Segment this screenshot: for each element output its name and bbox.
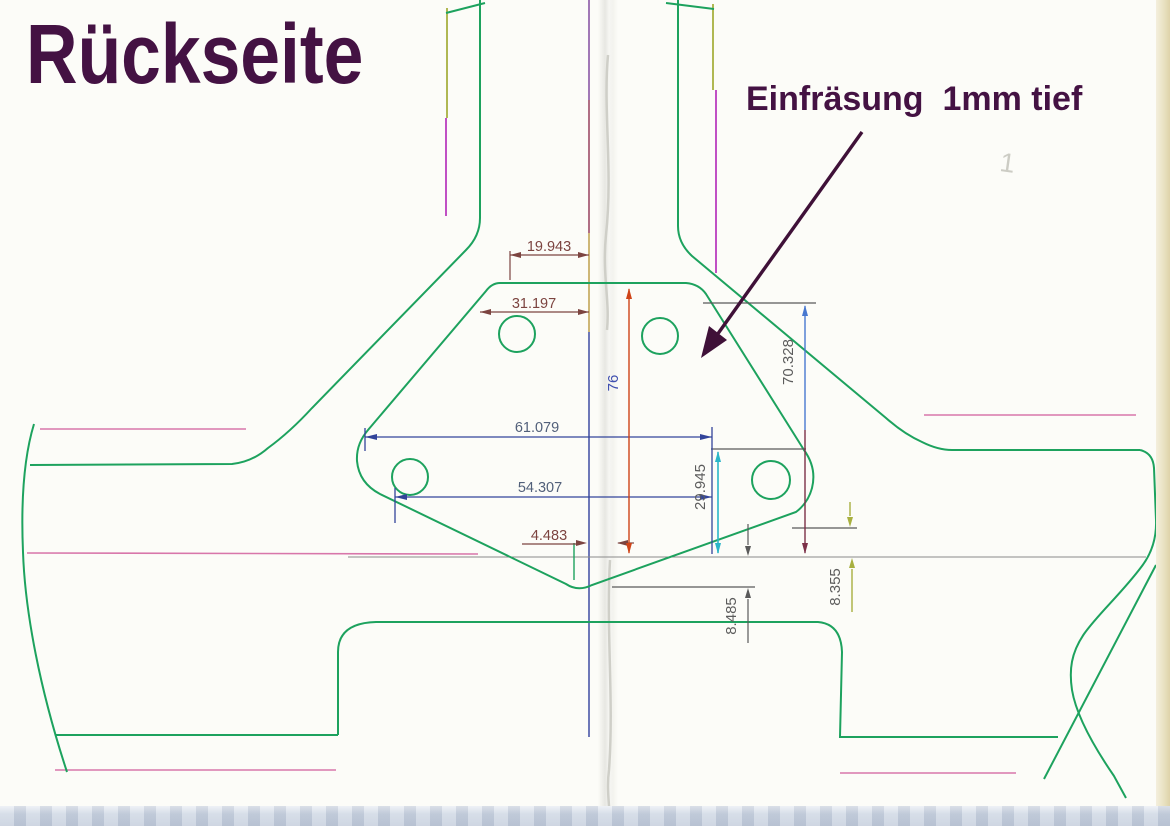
milling-note: Einfräsung 1mm tief [746,80,1082,119]
scan-edge-right [1156,0,1170,812]
extension-lines [612,303,857,587]
right-neck-and-shoulder [678,0,1140,450]
dimension-lines-red [480,251,634,544]
dimension-label-top-offset: 19.943 [527,239,571,255]
annotation-arrow [701,132,862,358]
dimension-step-right-arrows [847,517,855,568]
dimension-label-bottom-step-left: 8.485 [723,597,740,635]
seam-artifact-lines [605,55,611,824]
corner-diagonal [1044,565,1156,779]
hole-top-left [499,316,535,352]
scanned-drawing-page: 19.943 31.197 61.079 54.307 4.483 76 70.… [0,0,1170,826]
page-title: Rückseite [26,12,363,96]
right-wing-tip [1071,450,1156,798]
left-wing-tip [22,424,67,772]
olive-construction-lines [447,4,713,118]
dimension-label-total-height: 76 [605,375,622,392]
hole-bottom-right [752,461,790,499]
dimension-label-hole-height: 29.945 [692,464,709,510]
magenta-construction-lines [446,90,716,273]
arrow-right-height-top [802,305,808,316]
bottom-profile [56,622,1058,737]
neck-top-edge-right [666,3,714,9]
dimension-label-center-offset: 4.483 [531,528,567,544]
technical-drawing: 19.943 31.197 61.079 54.307 4.483 76 70.… [0,0,1170,826]
dimension-label-bottom-step-right: 8.355 [827,568,844,606]
dimension-label-upper-hole-span: 31.197 [512,296,556,312]
milled-plate-outline [357,283,813,588]
arrow-right-height-bottom [802,543,808,554]
dimension-label-right-height: 70.328 [780,339,797,385]
hole-bottom-left [392,459,428,495]
dimension-label-outer-width: 61.079 [515,420,559,436]
scan-edge-bottom [0,806,1170,826]
hole-top-right [642,318,678,354]
dimension-step-left-arrows [745,546,751,598]
dimension-label-hole-width: 54.307 [518,480,562,496]
pink-construction-lines [27,415,1136,773]
